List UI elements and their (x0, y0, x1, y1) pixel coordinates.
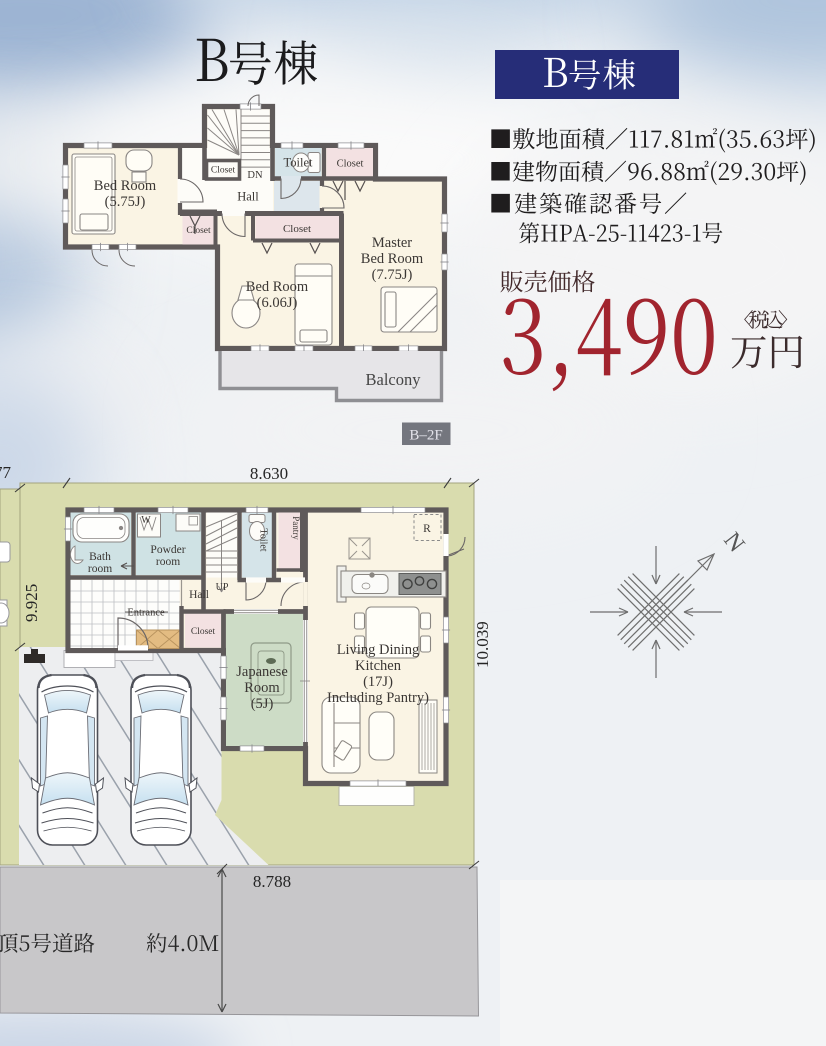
svg-text:Closet: Closet (283, 223, 311, 235)
svg-text:Entrance: Entrance (127, 608, 165, 619)
svg-text:room: room (88, 563, 112, 575)
svg-text:W: W (141, 515, 151, 526)
svg-text:8.788: 8.788 (253, 872, 291, 891)
svg-text:Living Dining: Living Dining (337, 642, 420, 658)
svg-text:DN: DN (247, 170, 263, 181)
svg-text:Closet: Closet (186, 226, 211, 236)
svg-text:room: room (156, 556, 180, 568)
svg-text:Balcony: Balcony (366, 370, 422, 389)
svg-text:(5.75J): (5.75J) (105, 194, 146, 210)
svg-text:R: R (423, 523, 431, 535)
svg-text:8.630: 8.630 (250, 464, 288, 483)
svg-text:(17J): (17J) (363, 674, 393, 690)
svg-text:Pantry: Pantry (291, 516, 301, 540)
svg-text:9.925: 9.925 (22, 584, 41, 622)
svg-text:Hall: Hall (189, 589, 209, 601)
svg-text:Powder: Powder (150, 544, 185, 556)
svg-text:B–2F: B–2F (409, 428, 442, 444)
svg-text:10.039: 10.039 (473, 621, 492, 668)
svg-text:Bed Room: Bed Room (94, 178, 157, 194)
svg-text:Master: Master (372, 235, 412, 251)
svg-text:Bed Room: Bed Room (361, 251, 424, 267)
svg-text:Bath: Bath (89, 551, 111, 563)
svg-text:(7.75J): (7.75J) (372, 267, 413, 283)
svg-text:Japanese: Japanese (236, 664, 288, 680)
svg-text:Closet: Closet (211, 166, 236, 176)
svg-text:Bed Room: Bed Room (246, 279, 309, 295)
svg-text:77: 77 (0, 463, 12, 482)
svg-text:Kitchen: Kitchen (355, 658, 402, 674)
svg-text:(5J): (5J) (251, 696, 274, 712)
svg-text:Toilet: Toilet (258, 528, 269, 551)
svg-text:Closet: Closet (337, 159, 364, 170)
svg-text:(6.06J): (6.06J) (257, 295, 298, 311)
svg-text:Toilet: Toilet (284, 156, 314, 170)
svg-text:UP: UP (216, 582, 229, 593)
svg-text:Including Pantry): Including Pantry) (327, 690, 429, 706)
svg-text:Closet: Closet (191, 627, 216, 637)
svg-text:Hall: Hall (237, 190, 259, 204)
svg-text:Room: Room (244, 680, 280, 696)
